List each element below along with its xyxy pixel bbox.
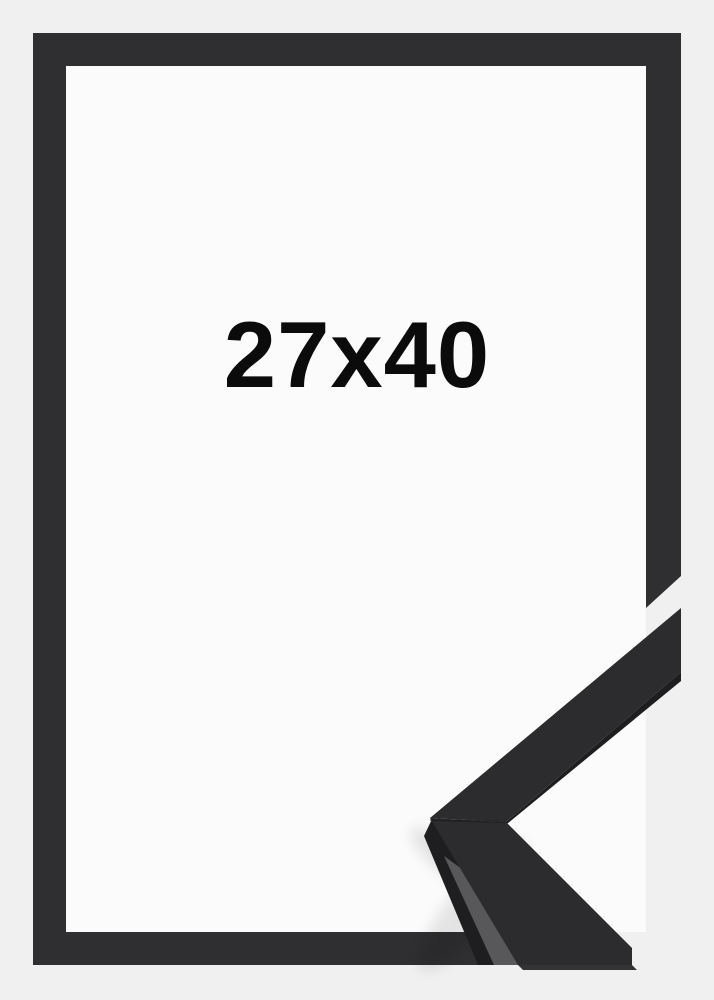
frame-border-left [33, 33, 66, 965]
frame-inner-area [66, 66, 646, 932]
product-photo: 27x40 [0, 0, 714, 1000]
sample-lower-arm-edge [518, 965, 637, 970]
picture-frame-graphic [0, 0, 714, 1000]
frame-border-top [33, 33, 681, 66]
size-label: 27x40 [0, 308, 714, 402]
